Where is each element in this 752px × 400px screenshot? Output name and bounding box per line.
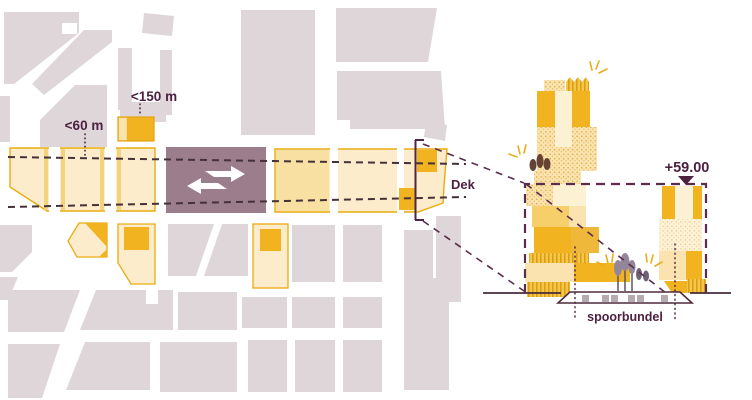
trees-deck: [614, 253, 649, 291]
street-notch: [62, 23, 77, 34]
tower-block: [572, 91, 590, 127]
street-gap: [105, 147, 116, 212]
tower-block: [529, 253, 589, 263]
city-block: [343, 340, 382, 392]
city-block: [0, 225, 32, 272]
label-spoorbundel: spoorbundel: [587, 310, 663, 324]
city-block: [336, 8, 437, 62]
tower-block: [659, 219, 702, 251]
tower-block: [534, 171, 581, 184]
city-block: [8, 290, 80, 332]
sparkle-icon: [509, 145, 526, 157]
tower-block: [675, 186, 693, 219]
plot-150m: [118, 117, 154, 141]
tree-icon: [544, 158, 551, 170]
city-block: [337, 71, 445, 129]
tower-block: [532, 206, 569, 227]
tower-right: [659, 186, 706, 293]
city-block: [80, 290, 173, 330]
rail-deck: [558, 292, 692, 303]
zone-tint-strip: [100, 149, 104, 210]
city-block: [343, 225, 382, 282]
tower-block: [544, 80, 565, 92]
city-block: [118, 48, 132, 110]
city-block: [241, 10, 315, 135]
tree-icon: [530, 159, 537, 171]
tower-block: [686, 251, 702, 280]
plot-c: [253, 224, 288, 288]
city-block: [142, 13, 174, 36]
deck-opening: [602, 295, 609, 302]
city-block: [160, 342, 237, 392]
tower-block: [555, 91, 572, 127]
city-block: [292, 225, 335, 282]
street-notch: [146, 290, 158, 304]
tower-block: [566, 77, 589, 92]
city-block: [178, 292, 237, 330]
tower-block: [571, 227, 599, 253]
tower-block: [659, 251, 686, 280]
diagram-svg: <60 m <150 m Dek +59.00 spoorbundel: [0, 0, 752, 400]
label-150m: <150 m: [131, 89, 177, 104]
label-height: +59.00: [665, 160, 710, 176]
city-block: [292, 297, 335, 328]
zone-highrise-spot: [417, 150, 437, 172]
tree-icon: [537, 154, 544, 168]
deck-opening: [661, 295, 668, 302]
deck-tunnel-section: [558, 292, 692, 303]
city-block: [343, 297, 382, 328]
label-dek: Dek: [451, 177, 476, 192]
plot-b: [118, 224, 155, 284]
tower-block: [553, 184, 586, 206]
tower-block: [555, 127, 572, 147]
city-block: [436, 216, 461, 302]
section-elevation: [483, 61, 731, 319]
sparkle-icon: [590, 61, 607, 73]
tower-block: [527, 282, 570, 297]
city-block: [295, 340, 335, 392]
city-block: [248, 340, 287, 392]
city-block: [40, 85, 107, 147]
diagram-canvas: <60 m <150 m Dek +59.00 spoorbundel: [0, 0, 752, 400]
tower-block: [537, 91, 555, 127]
label-60m: <60 m: [65, 118, 104, 133]
deck-opening: [637, 295, 644, 302]
tree-icon: [621, 253, 630, 271]
city-block: [66, 342, 150, 390]
tower-block: [525, 263, 574, 282]
deck-opening: [611, 295, 618, 302]
zone-tint-block: [276, 150, 329, 211]
tower-block: [662, 186, 675, 219]
tower-block: [693, 186, 702, 219]
city-block: [242, 297, 287, 328]
street-gap: [330, 148, 338, 214]
plot-a: [68, 223, 107, 257]
tower-block: [687, 279, 706, 293]
tower-block: [534, 227, 571, 253]
city-block: [8, 344, 60, 398]
tower-left: [525, 77, 630, 297]
deck-opening: [582, 295, 589, 302]
deck-opening: [628, 295, 635, 302]
city-block: [0, 96, 10, 142]
